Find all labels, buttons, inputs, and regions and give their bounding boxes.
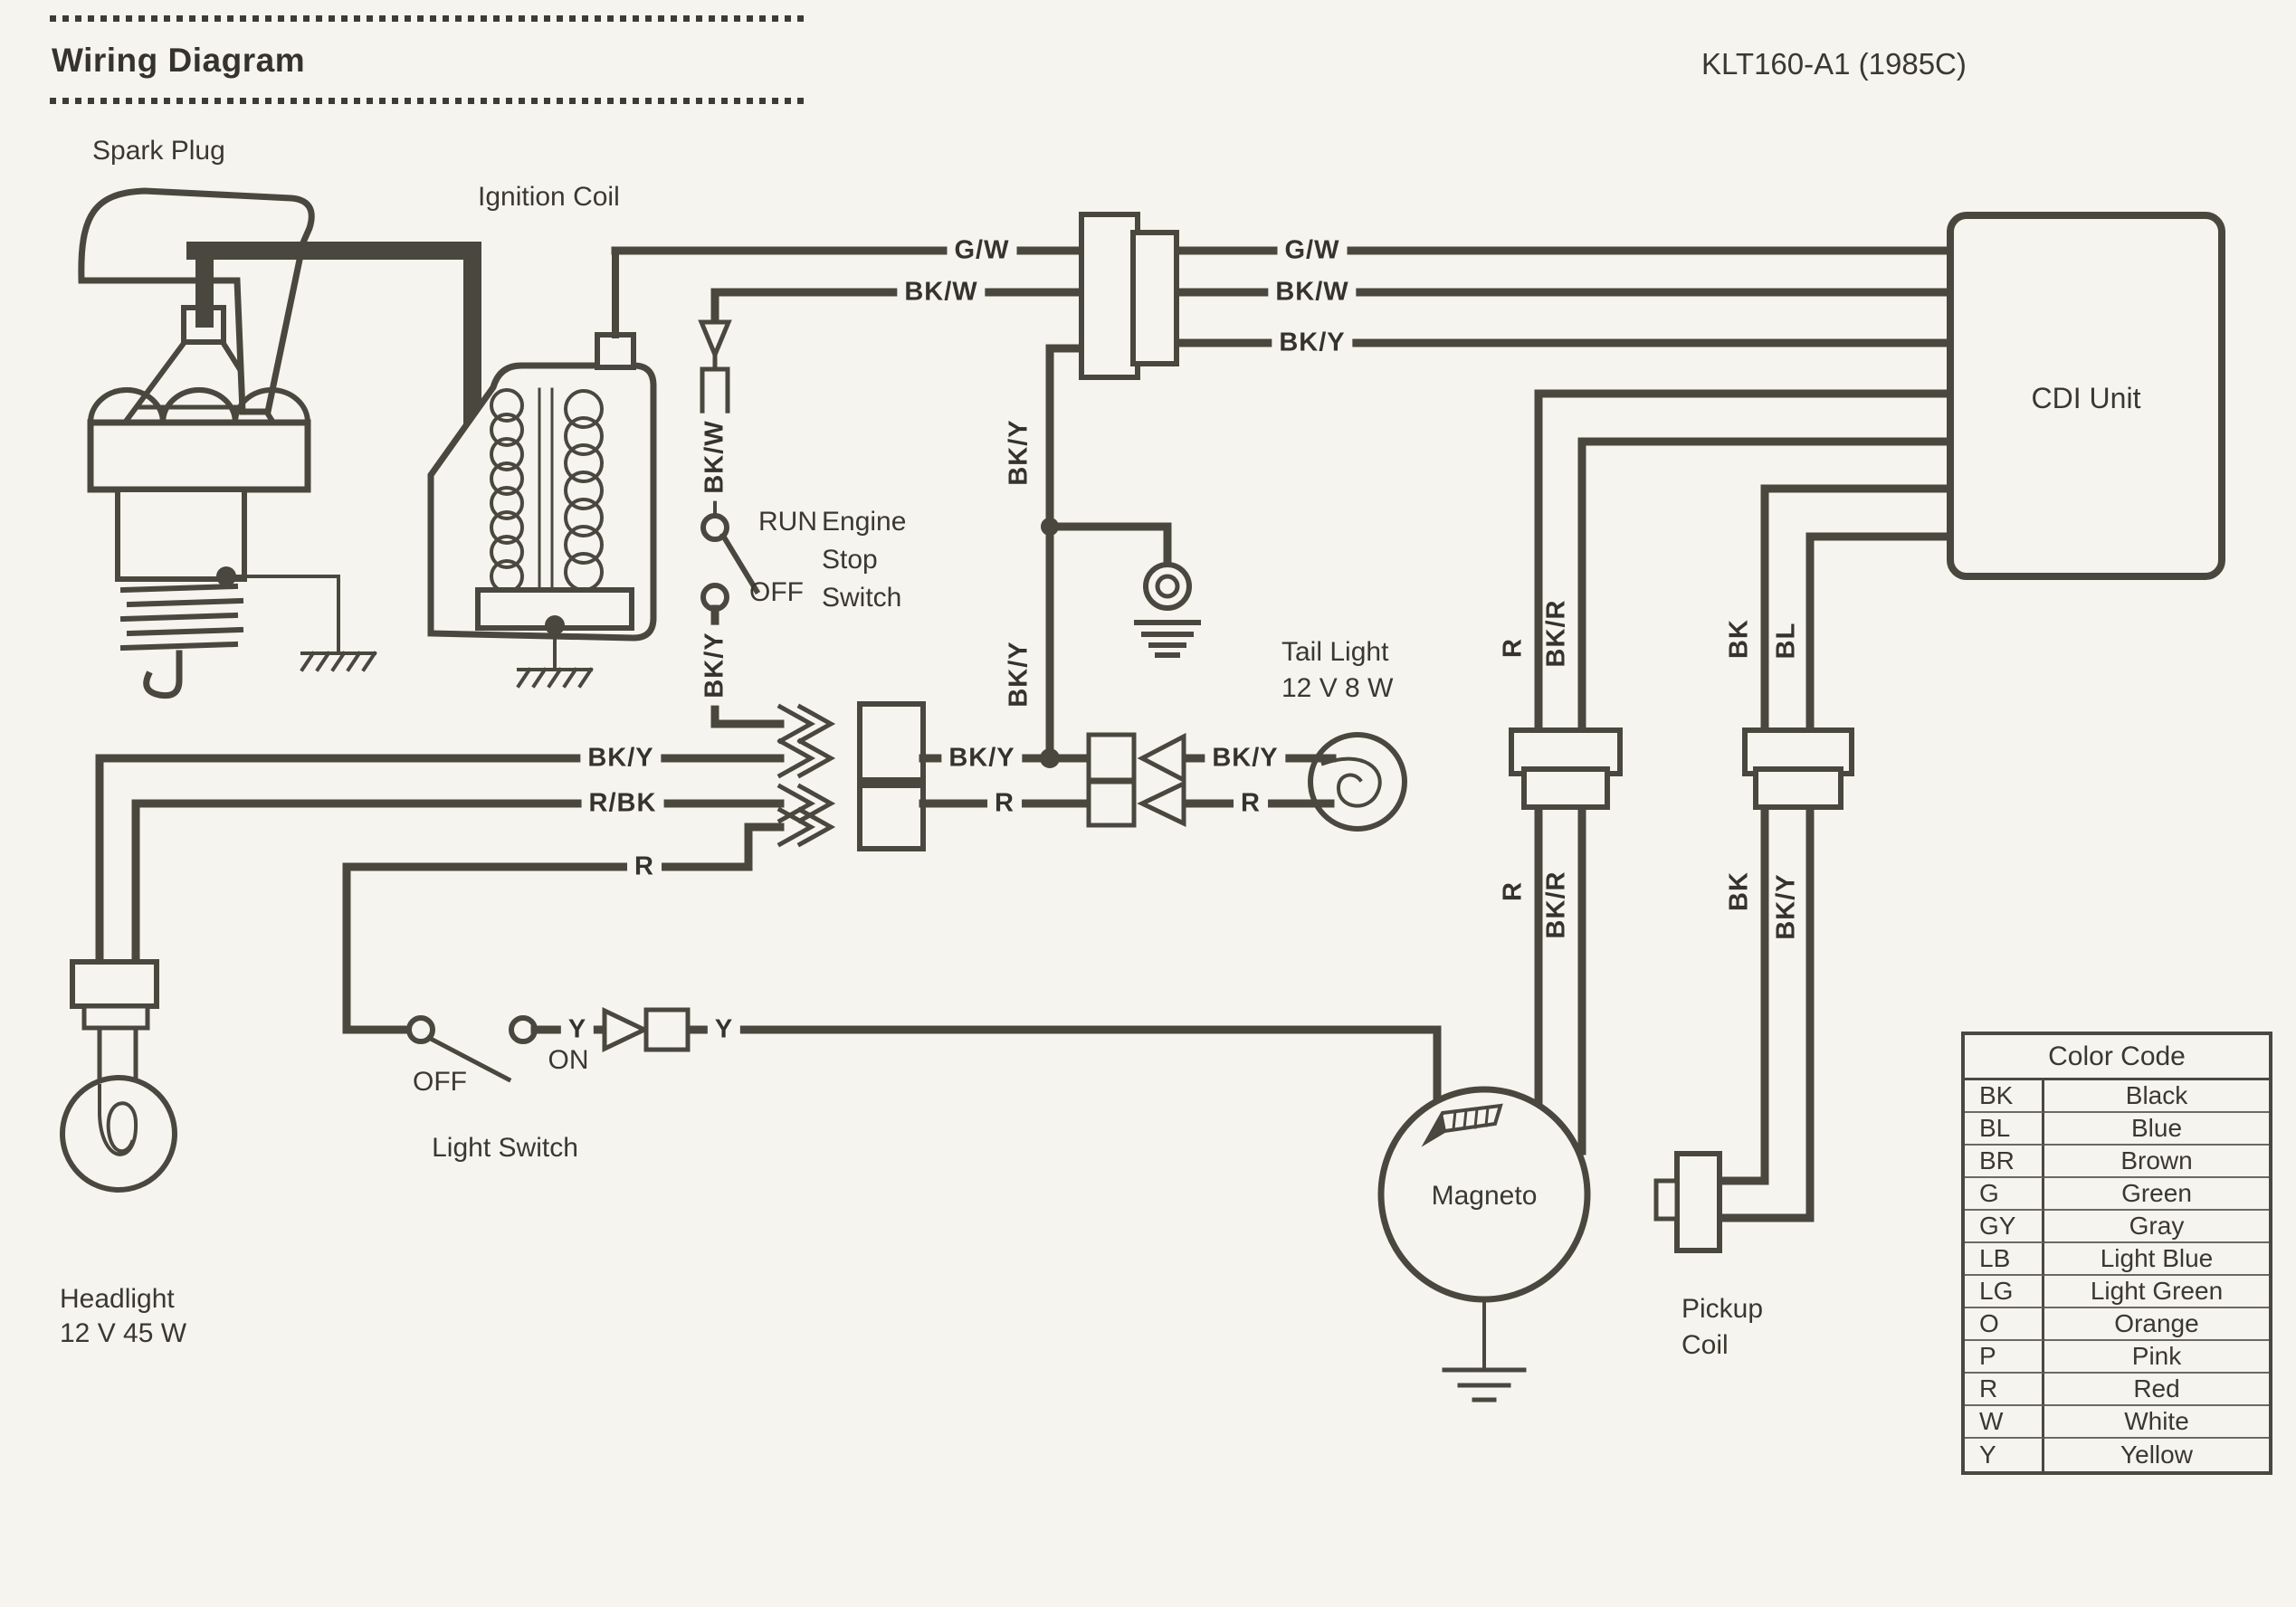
- chevron-connector-bottom: [780, 785, 923, 849]
- color-code-abbrev: LG: [1965, 1276, 2044, 1308]
- color-code-name: Light Green: [2044, 1276, 2269, 1308]
- ground-symbol-ignition-coil: [519, 670, 591, 686]
- page-title: Wiring Diagram: [52, 42, 305, 80]
- wire-label-bky-tail: BK/Y: [1205, 744, 1285, 774]
- wire-label-bkr-down: BK/R: [1542, 871, 1572, 939]
- color-code-name: White: [2044, 1406, 2269, 1439]
- wire-label-bky-vert-upper: BK/Y: [1005, 419, 1034, 485]
- wire-label-r-tail: R: [1234, 789, 1268, 819]
- wire-label-rbk-row: R/BK: [582, 789, 664, 819]
- pickup-coil-label-1: Pickup: [1682, 1296, 1763, 1323]
- color-code-name: Pink: [2044, 1341, 2269, 1374]
- color-code-abbrev: O: [1965, 1308, 2044, 1341]
- bullet-connector-r: [1089, 782, 1184, 825]
- light-switch-label: Light Switch: [432, 1135, 578, 1162]
- color-code-name: Red: [2044, 1374, 2269, 1406]
- wire-label-r-up: R: [1499, 638, 1529, 658]
- headlight-drawing: [62, 962, 175, 1190]
- left-harness-wires: [100, 758, 780, 1030]
- pickup-coil-drawing: [1656, 1154, 1720, 1250]
- wire-label-r-mid: R: [987, 789, 1022, 819]
- model-code: KLT160-A1 (1985C): [1701, 47, 1967, 81]
- pair-connector-right: [1745, 730, 1852, 807]
- bullet-connector-y: [605, 1010, 688, 1050]
- chevron-connector-top: [780, 704, 923, 780]
- engine-stop-switch-label-1: Engine: [822, 509, 906, 536]
- wire-label-y-2: Y: [708, 1015, 740, 1045]
- engine-stop-off-label: OFF: [749, 579, 804, 606]
- cdi-unit-label: CDI Unit: [2032, 384, 2141, 413]
- spark-plug-drawing: [81, 191, 375, 696]
- wire-label-bky-right: BK/Y: [1272, 328, 1352, 358]
- wire-label-bky-vert-lower: BK/Y: [1005, 641, 1034, 707]
- color-code-abbrev: P: [1965, 1341, 2044, 1374]
- wire-label-r-row: R: [627, 852, 662, 882]
- ignition-coil-label: Ignition Coil: [478, 184, 620, 211]
- tail-light-rating: 12 V 8 W: [1281, 675, 1393, 702]
- dotted-rule-bottom: [50, 98, 804, 104]
- color-code-title: Color Code: [1965, 1035, 2269, 1080]
- color-code-name: Gray: [2044, 1211, 2269, 1243]
- spark-plug-label: Spark Plug: [92, 138, 225, 165]
- engine-stop-switch-label-2: Stop: [822, 547, 878, 574]
- wiring-diagram-page: Wiring Diagram KLT160-A1 (1985C) Spark P…: [0, 0, 2296, 1607]
- wire-label-bl-up: BL: [1772, 623, 1802, 660]
- wire-label-bk-up: BK: [1725, 619, 1755, 659]
- wire-label-bkw-vertical: BK/W: [700, 413, 730, 500]
- color-code-name: Yellow: [2044, 1439, 2269, 1471]
- wire-label-bkw-right: BK/W: [1268, 278, 1356, 308]
- connector-block-center: [1081, 214, 1177, 377]
- wire-label-bkw-left: BK/W: [897, 278, 985, 308]
- magneto-drawing: [1381, 1089, 1587, 1400]
- ground-symbol-magneto: [1444, 1370, 1524, 1400]
- wire-label-bky-down: BK/Y: [1772, 873, 1802, 939]
- wire-label-bky-row: BK/Y: [580, 744, 661, 774]
- color-code-name: Orange: [2044, 1308, 2269, 1341]
- color-code-name: Blue: [2044, 1113, 2269, 1146]
- dotted-rule-top: [50, 15, 804, 22]
- wire-label-gw-left: G/W: [948, 236, 1017, 266]
- wire-label-bky-mid: BK/Y: [941, 744, 1022, 774]
- color-code-name: Brown: [2044, 1146, 2269, 1178]
- engine-stop-run-label: RUN: [758, 509, 817, 536]
- light-switch-on-label: ON: [548, 1047, 589, 1074]
- color-code-abbrev: LB: [1965, 1243, 2044, 1276]
- diagram-linework: [0, 0, 2296, 1607]
- tail-light-drawing: [1310, 735, 1405, 829]
- magneto-label: Magneto: [1432, 1183, 1538, 1210]
- wire-label-y-1: Y: [561, 1015, 594, 1045]
- color-code-table: Color Code BKBlack BLBlue BRBrown GGreen…: [1961, 1032, 2272, 1475]
- color-code-abbrev: G: [1965, 1178, 2044, 1211]
- color-code-abbrev: BL: [1965, 1113, 2044, 1146]
- color-code-abbrev: BR: [1965, 1146, 2044, 1178]
- color-code-name: Black: [2044, 1080, 2269, 1113]
- engine-stop-switch-label-3: Switch: [822, 585, 901, 612]
- light-switch-off-label: OFF: [413, 1069, 467, 1096]
- color-code-name: Green: [2044, 1178, 2269, 1211]
- wire-label-bkr-up: BK/R: [1542, 600, 1572, 668]
- color-code-abbrev: R: [1965, 1374, 2044, 1406]
- headlight-rating: 12 V 45 W: [60, 1320, 186, 1347]
- wire-label-r-down: R: [1499, 881, 1529, 901]
- wire-label-bk-down: BK: [1725, 871, 1755, 911]
- color-code-abbrev: W: [1965, 1406, 2044, 1439]
- wire-label-gw-right: G/W: [1278, 236, 1348, 266]
- ground-symbol-spark-plug: [302, 653, 375, 670]
- pickup-coil-label-2: Coil: [1682, 1332, 1729, 1359]
- color-code-abbrev: BK: [1965, 1080, 2044, 1113]
- tail-light-label: Tail Light: [1281, 639, 1388, 666]
- color-code-abbrev: Y: [1965, 1439, 2044, 1471]
- wire-label-bky-below-switch: BK/Y: [700, 624, 730, 705]
- color-code-name: Light Blue: [2044, 1243, 2269, 1276]
- color-code-abbrev: GY: [1965, 1211, 2044, 1243]
- headlight-label: Headlight: [60, 1286, 175, 1313]
- bullet-connector-bky: [1089, 735, 1184, 780]
- pair-connector-left: [1511, 730, 1620, 807]
- ground-screw-icon: [1137, 565, 1198, 655]
